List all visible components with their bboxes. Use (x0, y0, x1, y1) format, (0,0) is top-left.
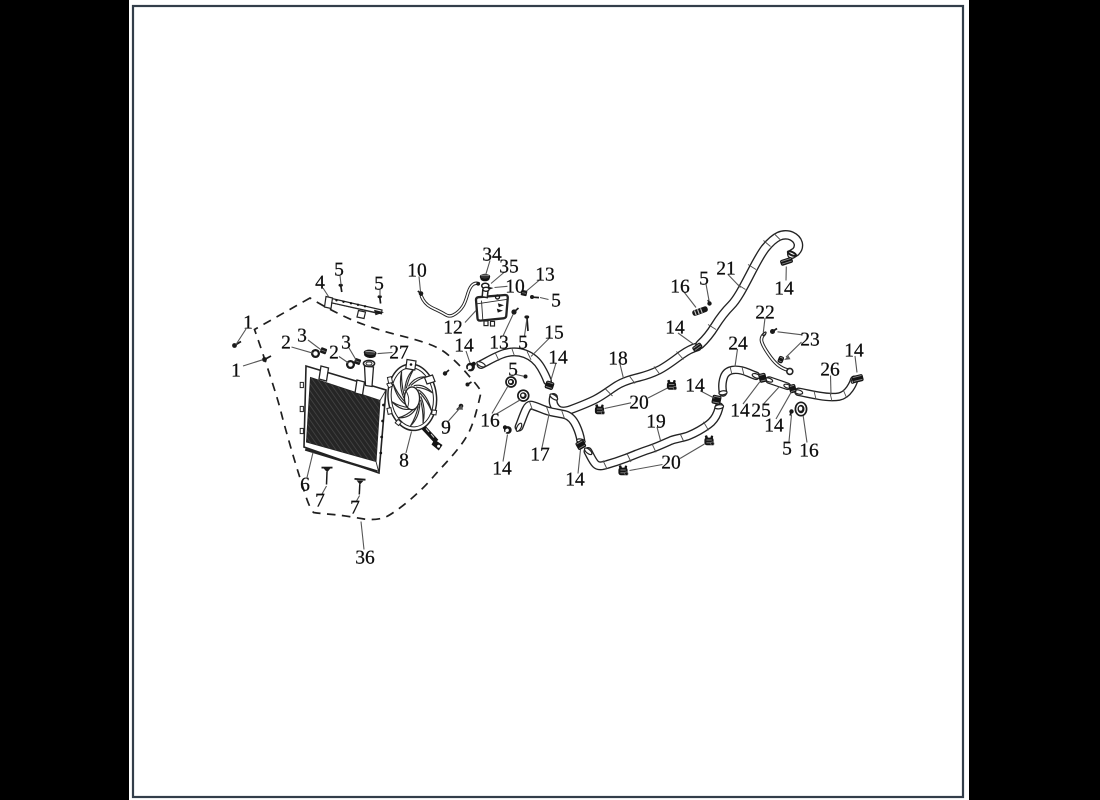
svg-text:7: 7 (315, 490, 325, 511)
svg-text:10: 10 (505, 276, 525, 297)
svg-text:13: 13 (535, 264, 555, 285)
svg-text:25: 25 (751, 400, 771, 421)
svg-text:14: 14 (492, 458, 512, 479)
svg-text:27: 27 (389, 342, 409, 363)
svg-text:16: 16 (480, 410, 500, 431)
svg-text:6: 6 (300, 474, 310, 495)
svg-text:3: 3 (341, 332, 351, 353)
svg-text:22: 22 (755, 302, 775, 323)
svg-text:3: 3 (297, 325, 307, 346)
svg-text:5: 5 (551, 290, 561, 311)
svg-text:21: 21 (716, 258, 736, 279)
svg-text:14: 14 (730, 400, 750, 421)
svg-text:1: 1 (243, 312, 253, 333)
svg-text:5: 5 (518, 332, 528, 353)
svg-text:7: 7 (350, 497, 360, 518)
svg-text:5: 5 (699, 268, 709, 289)
svg-text:23: 23 (800, 329, 820, 350)
svg-text:36: 36 (355, 547, 375, 568)
svg-text:20: 20 (661, 452, 681, 473)
svg-text:26: 26 (820, 359, 840, 380)
svg-text:4: 4 (315, 272, 325, 293)
svg-text:14: 14 (454, 335, 474, 356)
svg-text:5: 5 (334, 259, 344, 280)
svg-text:5: 5 (374, 273, 384, 294)
svg-text:1: 1 (231, 360, 241, 381)
svg-text:35: 35 (499, 256, 519, 277)
svg-text:5: 5 (782, 438, 792, 459)
svg-text:15: 15 (544, 322, 564, 343)
svg-text:14: 14 (548, 347, 568, 368)
svg-text:16: 16 (799, 440, 819, 461)
svg-text:17: 17 (530, 444, 550, 465)
svg-text:2: 2 (329, 342, 339, 363)
svg-text:14: 14 (685, 375, 705, 396)
svg-text:9: 9 (441, 417, 451, 438)
svg-text:8: 8 (399, 450, 409, 471)
svg-text:18: 18 (608, 348, 628, 369)
svg-text:2: 2 (281, 332, 291, 353)
svg-text:14: 14 (665, 317, 685, 338)
svg-text:13: 13 (489, 332, 509, 353)
svg-text:10: 10 (407, 260, 427, 281)
svg-text:20: 20 (629, 392, 649, 413)
svg-text:16: 16 (670, 276, 690, 297)
svg-text:14: 14 (565, 469, 585, 490)
svg-text:5: 5 (508, 359, 518, 380)
svg-text:14: 14 (844, 340, 864, 361)
svg-text:19: 19 (646, 411, 666, 432)
svg-text:24: 24 (728, 333, 748, 354)
svg-text:14: 14 (774, 278, 794, 299)
